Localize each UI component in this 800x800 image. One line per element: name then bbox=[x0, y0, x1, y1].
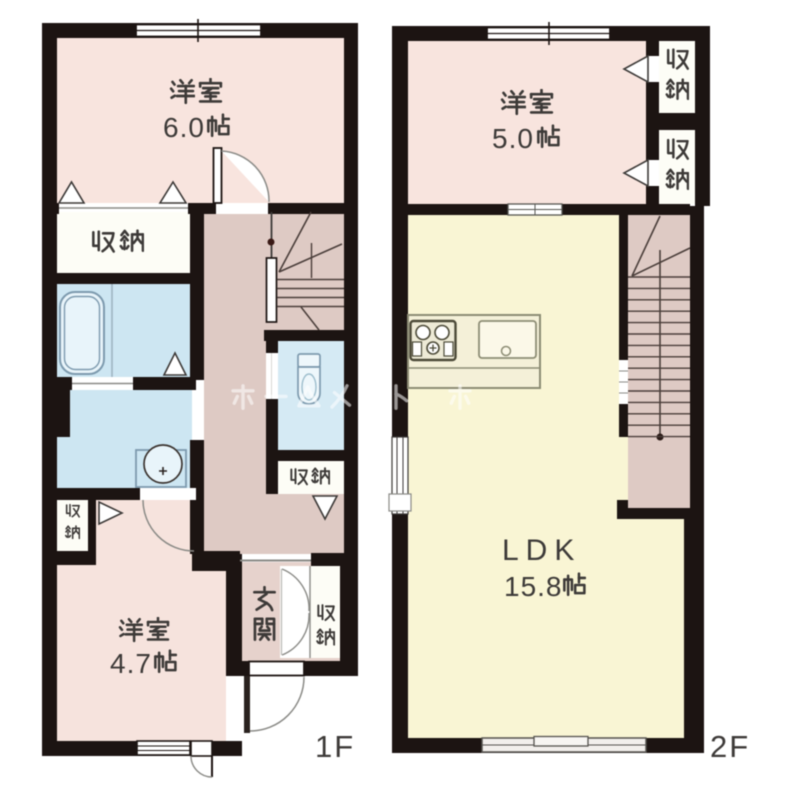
svg-text:LDK: LDK bbox=[502, 534, 581, 567]
svg-text:2F: 2F bbox=[710, 729, 750, 764]
svg-text:15.8: 15.8 bbox=[504, 571, 563, 602]
svg-text:4.7: 4.7 bbox=[110, 648, 152, 679]
svg-text:5.0: 5.0 bbox=[492, 123, 534, 154]
svg-text:1F: 1F bbox=[315, 729, 355, 764]
svg-text:6.0: 6.0 bbox=[163, 112, 205, 143]
